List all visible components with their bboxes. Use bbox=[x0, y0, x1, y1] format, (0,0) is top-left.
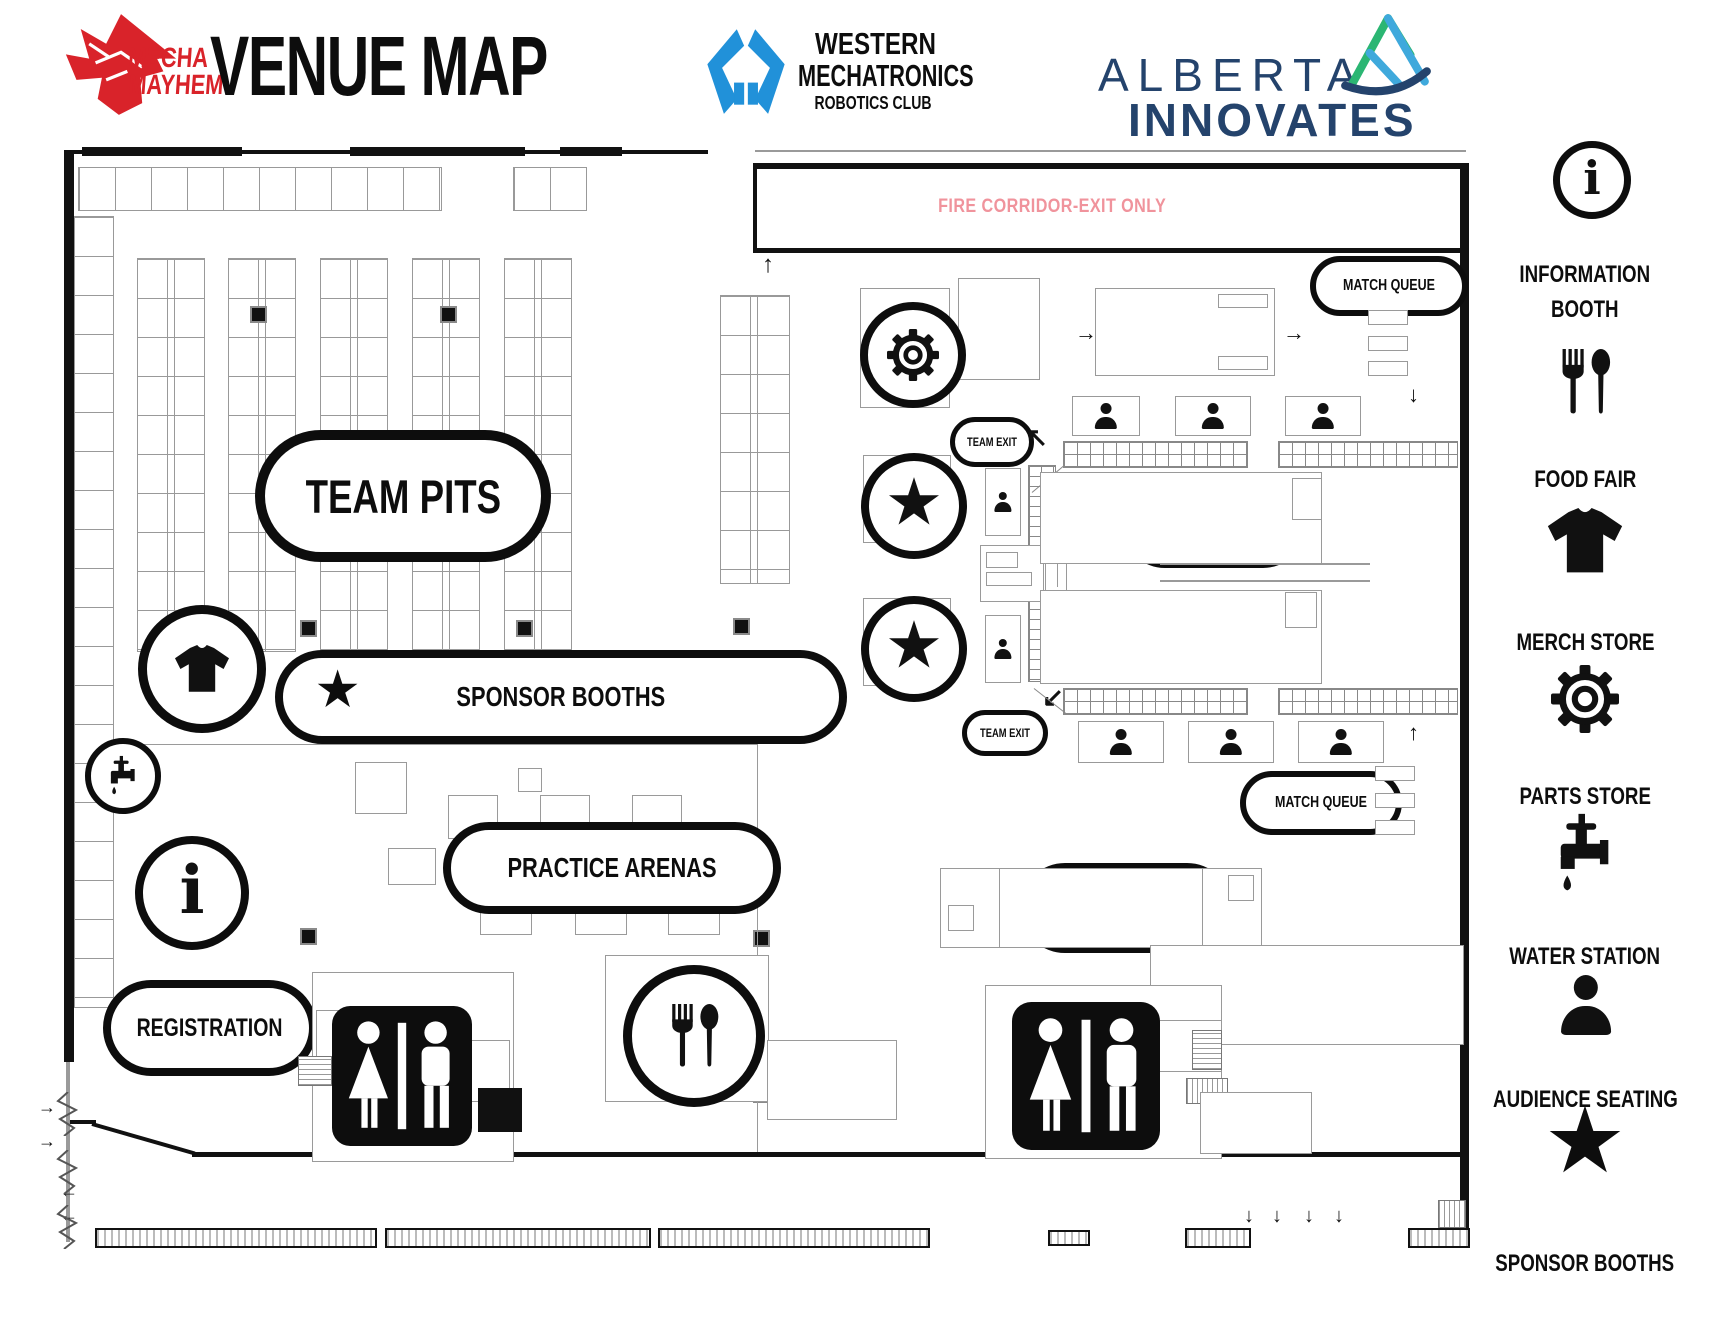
zone-divider bbox=[112, 744, 757, 745]
top-wall-segment bbox=[82, 147, 242, 156]
audience-seating-area bbox=[1063, 688, 1248, 715]
food-fair-booth-box bbox=[767, 1040, 897, 1120]
referee-box bbox=[985, 468, 1021, 536]
legend-label-information-booth: INFORMATION BOOTH bbox=[1455, 223, 1715, 327]
audience-seating-box bbox=[1072, 396, 1140, 436]
pillar bbox=[733, 618, 750, 635]
left-wall bbox=[64, 150, 74, 1062]
queue-table bbox=[1368, 310, 1408, 325]
person-icon bbox=[1310, 403, 1336, 429]
right-arrow-icon: → bbox=[38, 1132, 56, 1150]
down-arrow-icon: ↓ bbox=[1272, 1206, 1282, 1226]
skills-field-detail bbox=[948, 905, 974, 931]
person-icon bbox=[993, 639, 1013, 659]
tshirt-icon bbox=[170, 645, 234, 693]
down-arrow-icon: ↓ bbox=[1244, 1206, 1254, 1226]
team-pits-grid bbox=[513, 167, 587, 211]
booth-box bbox=[958, 278, 1040, 380]
right-arrow-icon: → bbox=[38, 1098, 56, 1116]
star-icon: ★ bbox=[317, 666, 358, 712]
venue-map-page: MECHA MAYHEM VENUE MAP WESTERN MECHATRON… bbox=[0, 0, 1719, 1328]
pillar bbox=[753, 930, 770, 947]
queue-table bbox=[1375, 766, 1415, 781]
water-station-map-icon bbox=[85, 738, 161, 814]
door-symbol bbox=[56, 1150, 78, 1194]
prairies-field bbox=[1040, 472, 1322, 564]
exterior-table bbox=[95, 1228, 377, 1248]
practice-table bbox=[355, 762, 407, 814]
field-tab bbox=[1285, 592, 1317, 628]
field-gap-line bbox=[1160, 563, 1370, 565]
legend-label-sponsor-booths: SPONSOR BOOTHS bbox=[1455, 1212, 1715, 1282]
pillar bbox=[300, 620, 317, 637]
restroom-structure bbox=[1200, 1092, 1312, 1154]
queue-table bbox=[1368, 336, 1408, 351]
sponsor-booths-icon: ★ bbox=[1525, 1095, 1645, 1187]
queue-table bbox=[1375, 793, 1415, 808]
field-control-detail bbox=[986, 552, 1018, 568]
western-mechatronics-logo-text: WESTERN MECHATRONICS ROBOTICS CLUB bbox=[798, 28, 1049, 114]
food-fair-icon bbox=[1552, 340, 1618, 424]
utility-box bbox=[478, 1088, 522, 1132]
audience-seating-icon bbox=[1557, 975, 1615, 1035]
field-tab bbox=[1292, 478, 1322, 520]
practice-table bbox=[388, 848, 436, 885]
sponsor-booth-map-icon: ★ bbox=[861, 453, 967, 559]
right-arrow-icon: → bbox=[1075, 322, 1097, 344]
down-arrow-icon: ↓ bbox=[1408, 384, 1419, 406]
fire-corridor-left-wall bbox=[753, 163, 757, 252]
exterior-table bbox=[1185, 1228, 1251, 1248]
information-icon: i bbox=[1553, 141, 1631, 219]
person-icon bbox=[1200, 403, 1226, 429]
page-title: VENUE MAP bbox=[210, 18, 691, 115]
fire-corridor-bottom-wall bbox=[753, 248, 1466, 253]
audience-seating-box bbox=[1188, 721, 1274, 763]
match-queue-pill: MATCH QUEUE bbox=[1310, 256, 1468, 316]
gear-icon bbox=[887, 329, 939, 381]
legend-label-food-fair: FOOD FAIR bbox=[1455, 428, 1715, 498]
practice-table bbox=[518, 768, 542, 792]
door-symbol bbox=[56, 1092, 78, 1136]
fork-spoon-icon bbox=[662, 995, 726, 1077]
person-icon bbox=[1108, 729, 1134, 755]
sponsor-booth-map-icon: ★ bbox=[861, 596, 967, 702]
team-pits-grid bbox=[137, 258, 205, 652]
team-exit-pill: TEAM EXIT bbox=[962, 710, 1048, 756]
parts-store-icon bbox=[1551, 665, 1619, 733]
team-pits-grid bbox=[720, 295, 790, 584]
up-arrow-icon: ↑ bbox=[762, 253, 774, 277]
pillar bbox=[516, 620, 533, 637]
star-icon: ★ bbox=[888, 468, 940, 536]
parts-store-map-icon bbox=[860, 302, 966, 408]
person-icon bbox=[1218, 729, 1244, 755]
team-pits-grid bbox=[74, 216, 114, 1008]
audience-seating-box bbox=[1175, 396, 1251, 436]
inspection-table-detail bbox=[1218, 356, 1268, 370]
audience-seating-area bbox=[1278, 441, 1458, 468]
merch-store-map-icon bbox=[138, 605, 266, 733]
restroom-icon bbox=[332, 1000, 472, 1152]
merch-store-icon bbox=[1542, 508, 1628, 574]
fire-corridor-label: FIRE CORRIDOR-EXIT ONLY bbox=[918, 196, 1148, 218]
water-station-icon bbox=[1546, 812, 1624, 896]
team-pits-grid bbox=[78, 167, 442, 211]
team-exit-pill: TEAM EXIT bbox=[950, 417, 1034, 467]
info-icon: i bbox=[179, 851, 204, 929]
legend-label-parts-store: PARTS STORE bbox=[1455, 745, 1715, 815]
field-control-detail bbox=[986, 572, 1032, 586]
stairs bbox=[1192, 1030, 1222, 1070]
stairs bbox=[298, 1056, 332, 1086]
legend-label-water-station: WATER STATION bbox=[1455, 905, 1715, 975]
fire-corridor-top-wall bbox=[753, 163, 1466, 169]
legend-label-merch-store: MERCH STORE bbox=[1455, 591, 1715, 661]
audience-seating-area bbox=[1063, 441, 1248, 468]
audience-seating-box bbox=[1285, 396, 1361, 436]
down-arrow-icon: ↓ bbox=[1334, 1206, 1344, 1226]
practice-arenas-pill: PRACTICE ARENAS bbox=[443, 822, 781, 914]
person-icon bbox=[1328, 729, 1354, 755]
information-booth-map-icon: i bbox=[135, 836, 249, 950]
sponsor-booths-pill: ★ SPONSOR BOOTHS bbox=[275, 650, 847, 744]
person-icon bbox=[993, 492, 1013, 512]
top-wall-segment bbox=[350, 147, 525, 156]
pillar bbox=[250, 306, 267, 323]
audience-seating-area bbox=[1278, 688, 1458, 715]
right-arrow-icon: → bbox=[1283, 322, 1305, 344]
registration-pill: REGISTRATION bbox=[103, 980, 317, 1076]
down-arrow-icon: ↓ bbox=[1304, 1206, 1314, 1226]
food-fair-map-icon bbox=[623, 965, 765, 1107]
western-mechatronics-logo-icon bbox=[700, 26, 792, 130]
referee-box bbox=[985, 615, 1021, 683]
field-gap-line bbox=[1160, 580, 1370, 582]
audience-seating-box bbox=[1078, 721, 1164, 763]
top-wall-right bbox=[755, 150, 1466, 152]
pillar bbox=[440, 306, 457, 323]
skills-field-detail bbox=[1228, 875, 1254, 901]
exterior-table bbox=[658, 1228, 930, 1248]
bottom-wall-diagonal bbox=[91, 1122, 195, 1155]
restroom-icon bbox=[1012, 1000, 1160, 1152]
alberta-innovates-logo-icon bbox=[1335, 10, 1437, 102]
person-icon bbox=[1093, 403, 1119, 429]
up-left-arrow-icon: ↖ bbox=[1026, 424, 1048, 450]
up-arrow-icon: ↑ bbox=[1408, 722, 1419, 744]
door-symbol bbox=[56, 1205, 78, 1249]
exterior-table bbox=[385, 1228, 651, 1248]
top-wall-segment bbox=[560, 147, 622, 156]
audience-seating-box bbox=[1298, 721, 1384, 763]
star-icon: ★ bbox=[888, 611, 940, 679]
queue-table bbox=[1375, 820, 1415, 835]
team-pits-pill: TEAM PITS bbox=[255, 430, 551, 562]
water-tap-icon bbox=[103, 755, 143, 797]
rockies-field bbox=[1040, 590, 1322, 684]
exterior-table bbox=[1048, 1230, 1090, 1246]
queue-table bbox=[1368, 361, 1408, 376]
inspection-table-detail bbox=[1218, 294, 1268, 308]
pillar bbox=[300, 928, 317, 945]
